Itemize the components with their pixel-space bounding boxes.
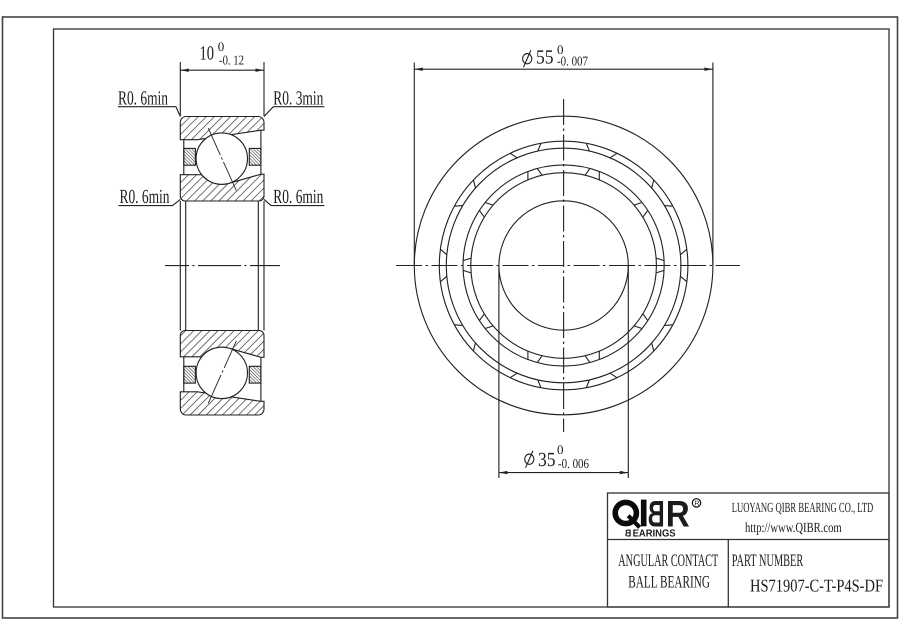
svg-text:-0. 007: -0. 007	[557, 54, 588, 69]
svg-text:55: 55	[536, 47, 554, 69]
svg-text:35: 35	[538, 449, 556, 471]
svg-text:R: R	[694, 501, 699, 508]
svg-text:R0. 6min: R0. 6min	[118, 87, 168, 109]
svg-text:10: 10	[200, 43, 215, 65]
svg-text:LUOYANG QIBR BEARING CO., LTD: LUOYANG QIBR BEARING CO., LTD	[732, 501, 874, 516]
svg-text:R0. 3min: R0. 3min	[273, 87, 323, 109]
svg-text:PART NUMBER: PART NUMBER	[732, 550, 804, 570]
svg-text:B: B	[625, 528, 631, 539]
svg-text:-0. 12: -0. 12	[219, 52, 244, 67]
svg-text:EARINGS: EARINGS	[633, 528, 676, 539]
svg-text:BALL BEARING: BALL BEARING	[628, 571, 710, 591]
svg-text:R0. 6min: R0. 6min	[273, 186, 323, 208]
svg-text:R0. 6min: R0. 6min	[120, 186, 170, 208]
svg-text:ANGULAR CONTACT: ANGULAR CONTACT	[618, 550, 718, 570]
svg-text:0: 0	[557, 442, 564, 457]
svg-text:-0. 006: -0. 006	[558, 456, 589, 471]
svg-text:HS71907-C-T-P4S-DF: HS71907-C-T-P4S-DF	[750, 575, 883, 595]
svg-text:http://www.QIBR.com: http://www.QIBR.com	[745, 521, 842, 536]
